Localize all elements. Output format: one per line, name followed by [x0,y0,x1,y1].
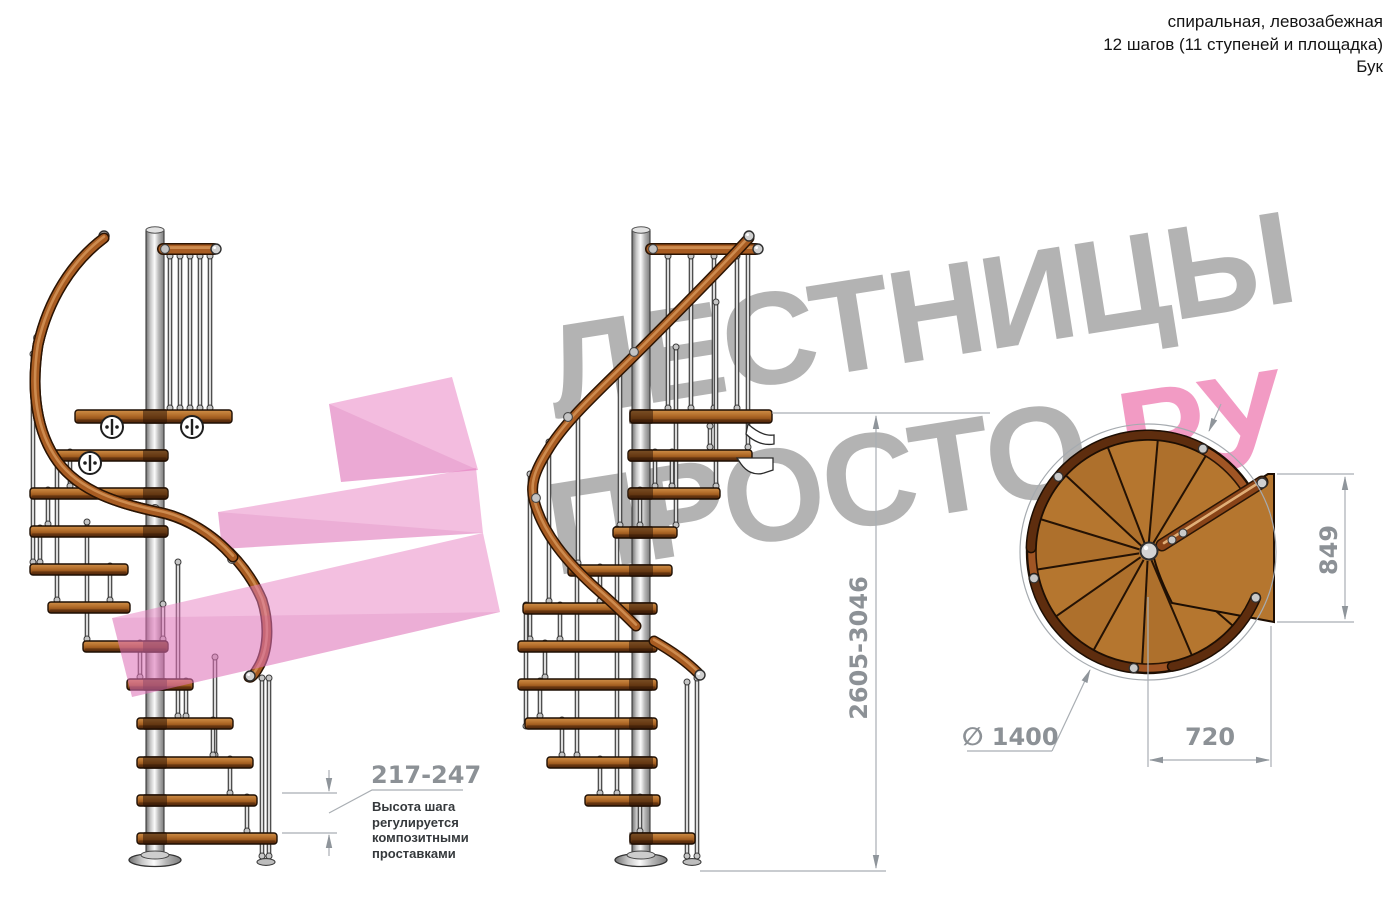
dim-landing-width-label: 720 [1160,723,1260,751]
watermark-arrow [112,377,500,697]
dim-landing-depth-label: 849 [1315,510,1343,590]
dim-total-height-label: 2605-3046 [845,568,873,728]
side-view-left-handrail-front [35,237,233,557]
title-block: спиральная, левозабежная 12 шагов (11 ст… [1103,11,1383,79]
side-view-middle [518,227,774,867]
dim-diameter-label: ∅ 1400 [962,722,1059,751]
step-height-note: Высота шага регулируется композитными пр… [372,799,469,861]
diameter-value: 1400 [992,723,1059,751]
title-line-material: Бук [1103,56,1383,79]
dim-step-height-label: 217-247 [371,761,481,789]
staircase-drawing [0,0,1400,907]
title-line-type: спиральная, левозабежная [1103,11,1383,34]
title-line-steps: 12 шагов (11 ступеней и площадка) [1103,34,1383,57]
drawing-canvas: ЛЕСТНИЦЫ ПРОСТО.РУ спиральная, левозабеж… [0,0,1400,907]
diameter-symbol: ∅ [962,722,983,751]
